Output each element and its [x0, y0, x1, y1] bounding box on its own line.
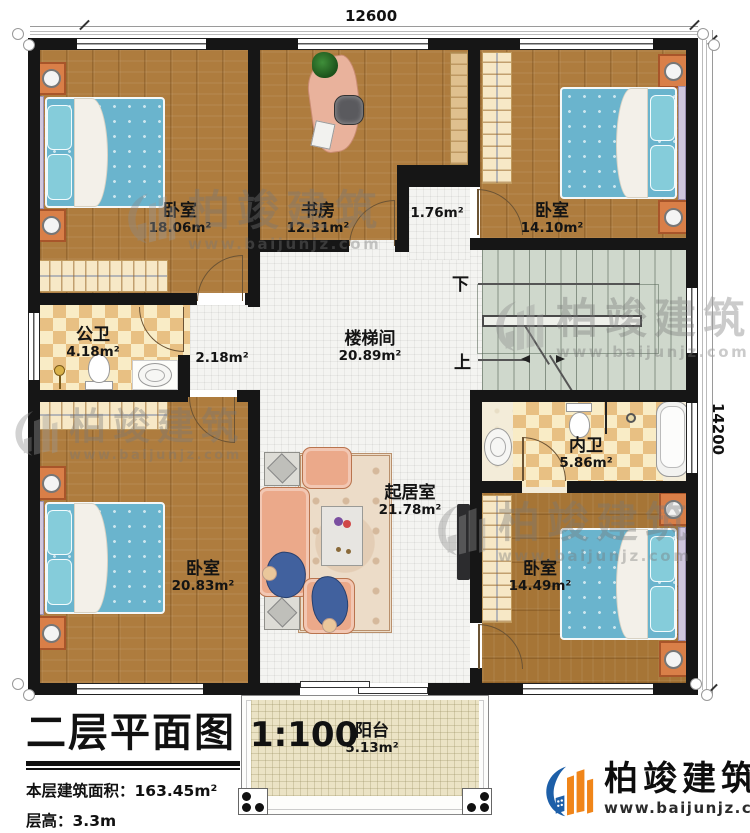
room-name: 卧室 — [509, 560, 572, 579]
person-head — [262, 566, 277, 581]
bed-pillow — [650, 536, 675, 582]
shower-head — [626, 413, 636, 423]
wall — [686, 353, 698, 403]
wall — [428, 38, 520, 50]
wall — [28, 683, 77, 695]
stair-direction-line — [478, 283, 640, 285]
wall — [428, 683, 523, 695]
nightstand — [36, 209, 66, 242]
floor-plan-page: { "dimensions": { "width": "12600", "hei… — [0, 0, 750, 833]
sink — [138, 363, 172, 387]
eave-line — [30, 31, 698, 32]
potted-plant — [312, 52, 338, 78]
toilet-tank — [566, 403, 592, 412]
wall — [248, 240, 349, 252]
room-area: 21.78m² — [379, 503, 442, 518]
wall — [470, 238, 686, 250]
room-area: 20.89m² — [339, 349, 402, 364]
bed-blanket — [74, 503, 108, 613]
room-label-hallway: 2.18m² — [195, 351, 248, 366]
room-name: 内卫 — [559, 437, 612, 456]
bed-headboard — [678, 86, 686, 200]
room-label-vestibule: 1.76m² — [410, 206, 463, 221]
nightstand — [37, 466, 66, 500]
window — [686, 403, 698, 473]
door-leaf — [234, 397, 236, 443]
bed — [560, 527, 686, 641]
title-block: 二层平面图 1:100 本层建筑面积：163.45m² 层高：3.3m — [26, 700, 358, 831]
sink — [484, 428, 512, 466]
door-leaf — [394, 200, 396, 246]
plan-scale: 1:100 — [250, 715, 358, 755]
bed-pillow — [650, 586, 675, 632]
company-url: www.baijunjz.com — [604, 799, 750, 817]
shower-arm — [605, 402, 607, 434]
room-name: 公卫 — [66, 326, 119, 345]
door-leaf — [478, 624, 480, 669]
bed-pillow — [47, 559, 72, 605]
dimension-line-right — [712, 30, 713, 695]
room-name: 书房 — [287, 202, 350, 221]
wall — [470, 668, 482, 683]
room-area: 12.31m² — [287, 221, 350, 236]
axis-marker — [12, 28, 24, 40]
room-area: 18.06m² — [149, 221, 212, 236]
window — [28, 313, 40, 380]
wall — [395, 240, 409, 252]
room-area: 4.18m² — [66, 345, 119, 360]
wall — [245, 293, 260, 305]
nightstand — [658, 54, 688, 88]
wall — [397, 165, 480, 187]
nightstand — [36, 62, 66, 95]
bed — [36, 96, 165, 209]
wall — [470, 481, 522, 493]
window — [298, 38, 428, 50]
wall — [28, 390, 188, 402]
floor-height-label: 层高： — [26, 812, 73, 830]
axis-marker — [12, 678, 24, 690]
wall — [28, 380, 40, 695]
wall — [470, 390, 686, 402]
wall — [28, 293, 197, 305]
coffee-table — [321, 506, 363, 566]
post-dot — [467, 803, 476, 812]
bed-pillow — [650, 145, 675, 191]
stair-up-label: 上 — [454, 348, 471, 373]
axis-marker — [23, 39, 35, 51]
wall — [248, 50, 260, 307]
sliding-door — [358, 687, 428, 694]
wall — [686, 473, 698, 695]
stair-down-label: 下 — [452, 270, 469, 295]
room-area: 1.76m² — [410, 206, 463, 221]
flowers — [346, 549, 351, 554]
nightstand — [658, 200, 688, 234]
wall — [206, 38, 298, 50]
wall — [567, 481, 686, 493]
room-name: 卧室 — [172, 560, 235, 579]
room-label-study: 书房 12.31m² — [287, 202, 350, 236]
title-underline — [26, 761, 240, 766]
room-name: 卧室 — [521, 202, 584, 221]
floor-area-label: 本层建筑面积： — [26, 782, 135, 800]
window — [520, 38, 653, 50]
wall — [203, 683, 300, 695]
axis-marker — [708, 39, 720, 51]
side-table — [264, 596, 300, 630]
bed-blanket — [74, 98, 108, 207]
window — [686, 288, 698, 353]
company-logo-icon — [540, 762, 594, 820]
armchair — [302, 447, 352, 489]
room-area: 14.49m² — [509, 579, 572, 594]
room-area: 2.18m² — [195, 351, 248, 366]
person-head — [322, 618, 337, 633]
stair-handrail — [482, 315, 642, 327]
room-area: 14.10m² — [521, 221, 584, 236]
room-label-bedroom-tr: 卧室 14.10m² — [521, 202, 584, 236]
side-table — [264, 452, 300, 486]
stair-arrow — [521, 355, 530, 363]
door-leaf — [183, 307, 185, 352]
bathtub-inner — [660, 406, 685, 468]
flowers — [343, 520, 351, 528]
balcony-post — [462, 788, 492, 815]
room-name: 楼梯间 — [339, 330, 402, 349]
door-leaf — [477, 189, 479, 235]
company-logo: 柏竣建筑 www.baijunjz.com — [540, 762, 750, 820]
dimension-tick — [79, 20, 90, 31]
axis-marker — [697, 28, 709, 40]
room-area: 5.86m² — [559, 456, 612, 471]
nightstand — [659, 492, 688, 526]
bed-pillow — [650, 95, 675, 141]
floor-drain — [54, 365, 65, 376]
door-leaf — [242, 255, 244, 301]
window — [523, 683, 653, 695]
hallway-floor — [190, 305, 260, 390]
bed-blanket — [616, 529, 648, 639]
plan-title: 二层平面图 — [26, 700, 236, 758]
room-name: 卧室 — [149, 202, 212, 221]
room-label-ensuite-bath: 内卫 5.86m² — [559, 437, 612, 471]
wall — [248, 390, 260, 683]
wardrobe — [482, 52, 512, 184]
room-name: 起居室 — [379, 484, 442, 503]
bed-pillow — [47, 105, 72, 150]
room-label-bedroom-br: 卧室 14.49m² — [509, 560, 572, 594]
bookshelf — [450, 52, 468, 165]
axis-marker — [690, 678, 702, 690]
nightstand — [37, 616, 66, 650]
room-label-living-room: 起居室 21.78m² — [379, 484, 442, 518]
wall — [468, 50, 480, 165]
room-label-bedroom-tl: 卧室 18.06m² — [149, 202, 212, 236]
office-chair — [334, 95, 364, 125]
eave-line — [30, 34, 698, 35]
mop-handle — [59, 376, 61, 389]
eave-line — [706, 40, 707, 690]
tv — [457, 504, 470, 580]
dimension-line-top — [30, 26, 698, 27]
nightstand — [659, 641, 688, 677]
window — [77, 38, 206, 50]
wall — [28, 38, 40, 313]
room-label-stair-hall: 楼梯间 20.89m² — [339, 330, 402, 364]
flowers — [334, 517, 343, 526]
stair-hall-floor-upper — [260, 240, 482, 390]
post-dot — [480, 803, 489, 812]
wall — [686, 38, 698, 288]
stair-arrow — [556, 355, 565, 363]
dimension-width: 12600 — [345, 7, 397, 25]
floor-area-value: 163.45m² — [135, 782, 218, 800]
dimension-height: 14200 — [709, 403, 727, 455]
company-name: 柏竣建筑 — [604, 762, 750, 796]
bed-headboard — [678, 527, 686, 641]
wardrobe — [36, 400, 168, 430]
flowers — [336, 547, 341, 552]
bed — [36, 501, 165, 615]
bed-pillow — [47, 510, 72, 555]
room-label-public-bath: 公卫 4.18m² — [66, 326, 119, 360]
bed-blanket — [616, 88, 648, 198]
toilet — [569, 412, 590, 438]
window — [77, 683, 203, 695]
floor-height-value: 3.3m — [73, 812, 117, 830]
bed — [560, 86, 686, 200]
axis-marker — [701, 689, 713, 701]
post-dot — [480, 792, 489, 801]
wall — [470, 402, 482, 493]
door-leaf — [522, 437, 524, 481]
eave-line — [702, 40, 703, 690]
room-area: 20.83m² — [172, 579, 235, 594]
wardrobe — [482, 495, 512, 623]
title-underline-thin — [26, 768, 240, 770]
room-label-bedroom-bl: 卧室 20.83m² — [172, 560, 235, 594]
wall — [470, 493, 482, 623]
bed-pillow — [47, 154, 72, 200]
wardrobe — [36, 260, 168, 292]
